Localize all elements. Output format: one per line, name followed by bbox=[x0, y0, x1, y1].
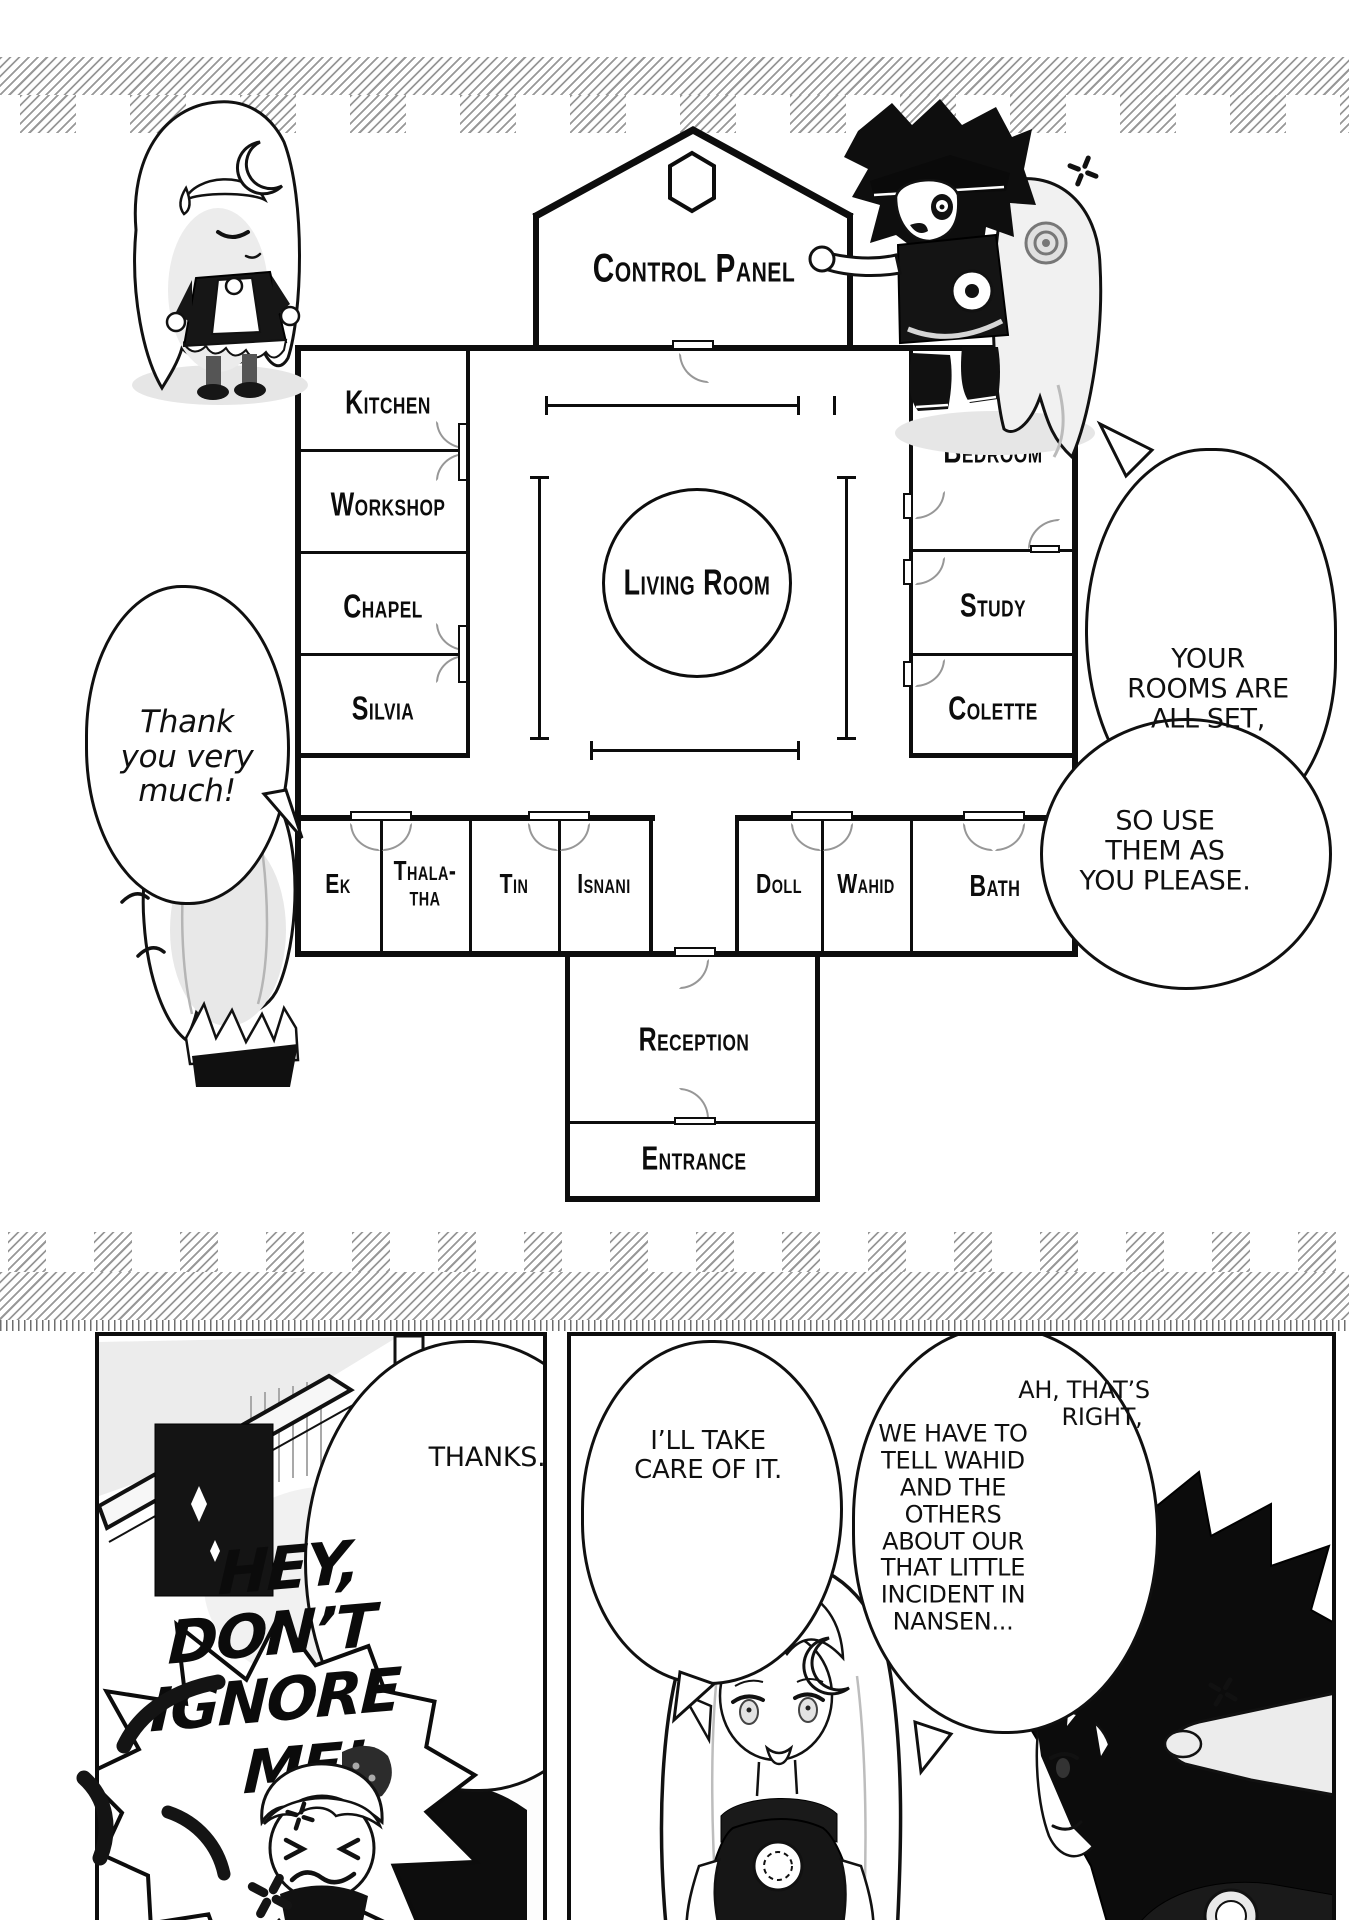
wall-segment bbox=[295, 653, 468, 656]
wall-segment bbox=[735, 815, 1078, 821]
battlement-tooth bbox=[954, 1232, 992, 1272]
divider-band bbox=[0, 1272, 1349, 1320]
door-leaf bbox=[458, 625, 468, 683]
wall-segment bbox=[533, 213, 539, 349]
door-leaf bbox=[791, 811, 853, 821]
wall-segment bbox=[295, 345, 301, 821]
wall-segment bbox=[530, 737, 549, 740]
wall-segment bbox=[708, 1121, 818, 1124]
wall-segment bbox=[815, 951, 1078, 957]
door-leaf bbox=[672, 340, 714, 350]
battlement-tooth bbox=[610, 1232, 648, 1272]
room-label-bath: Bath bbox=[970, 873, 1021, 901]
anger-strokes bbox=[40, 1660, 380, 1920]
door-arc bbox=[915, 659, 945, 687]
chibi-boy-and-hooded bbox=[800, 85, 1105, 485]
door-leaf bbox=[903, 661, 913, 687]
door-arc bbox=[823, 823, 853, 851]
door-leaf bbox=[350, 811, 412, 821]
manga-page: Control Panel Kitchen Workshop Chapel Si… bbox=[0, 0, 1349, 1920]
battlement-tooth bbox=[8, 1232, 46, 1272]
wall-segment bbox=[545, 396, 548, 415]
door-leaf bbox=[458, 423, 468, 481]
speech-text-ah-right: AH, THAT’S RIGHT, bbox=[1018, 1377, 1150, 1431]
wall-segment bbox=[845, 476, 848, 740]
wall-segment bbox=[571, 951, 677, 957]
wall-segment bbox=[295, 815, 655, 821]
wall-segment bbox=[837, 737, 856, 740]
room-label-workshop: Workshop bbox=[331, 490, 446, 521]
wall-segment bbox=[545, 404, 800, 407]
divider-teeth bbox=[0, 1232, 1349, 1272]
chibi-elf-bowing bbox=[100, 80, 335, 415]
room-label-doll: Doll bbox=[756, 871, 802, 897]
wall-segment bbox=[565, 1196, 820, 1202]
speech-bubble-thank-you-tail bbox=[258, 788, 310, 844]
door-leaf bbox=[1030, 545, 1060, 553]
battlement-tooth bbox=[524, 1232, 562, 1272]
room-label-silvia: Silvia bbox=[352, 694, 414, 725]
speech-text-tell-wahid: WE HAVE TO TELL WAHID AND THE OTHERS ABO… bbox=[878, 1421, 1027, 1636]
door-arc bbox=[915, 557, 945, 585]
wall-segment bbox=[590, 749, 800, 752]
battlement-tooth bbox=[438, 1232, 476, 1272]
battlement-tooth bbox=[868, 1232, 906, 1272]
door-leaf bbox=[903, 559, 913, 585]
wall-segment bbox=[797, 741, 800, 760]
speech-bubble-tell-wahid-tail bbox=[901, 1716, 957, 1776]
wall-segment bbox=[909, 653, 1076, 656]
room-label-colette: Colette bbox=[948, 694, 1038, 725]
room-label-isnani: Isnani bbox=[577, 871, 631, 897]
wall-segment bbox=[590, 741, 593, 760]
door-arc bbox=[915, 491, 945, 519]
room-label-reception: Reception bbox=[639, 1025, 750, 1056]
wall-segment bbox=[815, 951, 820, 1201]
wall-segment bbox=[565, 951, 570, 1201]
speech-text-thank-you: Thank you very much! bbox=[121, 705, 254, 809]
room-label-chapel: Chapel bbox=[343, 592, 422, 623]
wall-segment bbox=[295, 551, 468, 554]
wall-segment bbox=[568, 1121, 680, 1124]
speech-bubble-rooms-set-tail bbox=[1096, 420, 1156, 482]
wall-segment bbox=[649, 815, 653, 957]
battlement-tooth bbox=[1126, 1232, 1164, 1272]
battlement-tooth bbox=[1040, 1232, 1078, 1272]
door-leaf bbox=[528, 811, 590, 821]
battlement-tooth bbox=[1212, 1232, 1250, 1272]
speech-bubble-take-care-tail bbox=[666, 1666, 718, 1724]
door-arc bbox=[679, 353, 709, 383]
battlement-tooth bbox=[94, 1232, 132, 1272]
door-leaf bbox=[674, 947, 716, 957]
speech-text-thanks: THANKS. bbox=[429, 1443, 546, 1473]
door-arc bbox=[679, 959, 709, 989]
wall-segment bbox=[735, 815, 739, 957]
room-label-control-panel: Control Panel bbox=[593, 251, 796, 288]
room-label-entrance: Entrance bbox=[642, 1144, 747, 1175]
wall-segment bbox=[469, 815, 472, 955]
battlement-tooth bbox=[696, 1232, 734, 1272]
door-arc bbox=[382, 823, 412, 851]
panel-conversation: I’LL TAKE CARE OF IT. AH, THAT’S RIGHT, … bbox=[567, 1332, 1336, 1920]
door-arc bbox=[528, 823, 558, 851]
door-leaf bbox=[674, 1117, 716, 1125]
wall-segment bbox=[538, 476, 541, 740]
room-label-wahid: Wahid bbox=[837, 871, 895, 897]
wall-segment bbox=[709, 951, 815, 957]
wall-segment bbox=[530, 476, 549, 479]
speech-text-take-care: I’LL TAKE CARE OF IT. bbox=[634, 1427, 782, 1485]
divider-comb bbox=[0, 1320, 1349, 1331]
door-arc bbox=[963, 823, 993, 851]
battlement-tooth bbox=[266, 1232, 304, 1272]
battlement-tooth bbox=[180, 1232, 218, 1272]
door-arc bbox=[995, 823, 1025, 851]
room-label-tin: Tin bbox=[500, 871, 529, 897]
room-label-study: Study bbox=[960, 591, 1026, 622]
speech-text-rooms-set: YOUR ROOMS ARE ALL SET, bbox=[1127, 645, 1289, 736]
speech-text-use-please: SO USE THEM AS YOU PLEASE. bbox=[1080, 807, 1251, 898]
door-arc bbox=[791, 823, 821, 851]
battlement-tooth bbox=[1298, 1232, 1336, 1272]
door-arc bbox=[350, 823, 380, 851]
wall-segment bbox=[295, 449, 468, 452]
room-label-kitchen: Kitchen bbox=[345, 388, 431, 419]
wall-segment bbox=[910, 815, 913, 955]
room-label-living-room: Living Room bbox=[624, 567, 771, 600]
speech-bubble-take-care bbox=[581, 1340, 843, 1685]
battlement-tooth bbox=[352, 1232, 390, 1272]
door-leaf bbox=[963, 811, 1025, 821]
battlement-tooth bbox=[782, 1232, 820, 1272]
door-arc bbox=[560, 823, 590, 851]
room-label-thala-line2: tha bbox=[394, 884, 457, 910]
shout-line-1: HEY, bbox=[217, 1527, 441, 1605]
wall-segment bbox=[909, 753, 1078, 758]
door-leaf bbox=[903, 493, 913, 519]
room-label-thala-tha: Thala- tha bbox=[394, 858, 457, 910]
door-arc bbox=[679, 1088, 709, 1119]
